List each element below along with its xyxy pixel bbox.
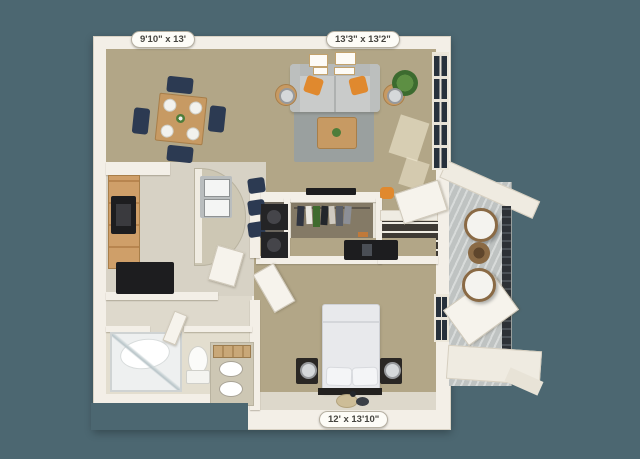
sink-basin-icon [219, 361, 243, 377]
floor-plan-image: 9'10" x 13' 13'3" x 13'2" 12' x 13'10" [0, 0, 640, 459]
nook-chair-icon [380, 187, 394, 199]
bed-icon [322, 304, 380, 392]
hanging-clothes-icon [306, 206, 313, 224]
centerpiece-icon [176, 114, 186, 124]
wall-bath-north-right [184, 326, 252, 332]
dining-chair-icon [208, 105, 227, 133]
desk-icon [344, 240, 398, 260]
sink-basin [204, 199, 230, 217]
desk-item [362, 244, 372, 256]
wall-art-frame-icon [309, 54, 328, 67]
bedside-lamp-icon [300, 362, 317, 379]
dining-chair-icon [132, 107, 151, 135]
shoe-icon [358, 232, 368, 237]
dining-dimension-label: 9'10" x 13' [131, 31, 195, 48]
sink-basin [204, 179, 230, 197]
vanity-sink-icon [210, 342, 254, 406]
hanging-clothes-icon [328, 206, 335, 224]
living-room-window [432, 52, 449, 170]
pouf-dot [350, 391, 356, 397]
dining-table-icon [155, 93, 208, 146]
balcony-wicker-table-icon [468, 242, 490, 264]
shell-notch [91, 403, 248, 430]
dryer-drum [267, 238, 281, 252]
table-lamp-icon [387, 88, 403, 104]
plate-icon [186, 127, 200, 141]
hanging-clothes-icon [296, 206, 304, 226]
duvet-fold [323, 321, 379, 323]
washer-drum [267, 210, 281, 224]
wall-art-frame-icon [313, 67, 328, 75]
plate-icon [160, 124, 174, 138]
dining-chair-icon [166, 145, 194, 164]
coffee-table-plant-icon [332, 128, 341, 137]
table-lamp-icon [279, 88, 295, 104]
tv-icon [306, 188, 356, 195]
double-sink-icon [200, 176, 232, 218]
dining-chair-icon [166, 76, 194, 95]
hanging-clothes-icon [320, 206, 328, 225]
hanging-clothes-icon [336, 206, 343, 226]
washer-icon [261, 204, 288, 230]
dryer-icon [261, 232, 288, 258]
bedroom-window [434, 294, 449, 342]
balcony-railing-icon [502, 206, 511, 352]
wall-art-frame-icon [334, 67, 355, 75]
sofa-armrest [370, 64, 380, 112]
towels-icon [213, 345, 251, 358]
balcony-chair-icon [462, 268, 496, 302]
refrigerator-icon [116, 262, 174, 294]
plate-icon [163, 98, 177, 112]
wall-art-frame-icon [335, 52, 356, 65]
bar-stool-icon [247, 177, 266, 194]
wall-kitchen-peninsula [106, 162, 170, 175]
bed-pillow-icon [352, 367, 379, 387]
oven-window [116, 204, 131, 226]
bed-pillow-icon [326, 367, 353, 387]
bedroom-dimension-label: 12' x 13'10" [319, 411, 388, 428]
sofa-cushion-line [334, 76, 336, 112]
living-dimension-label: 13'3" x 13'2" [326, 31, 400, 48]
toilet-tank [186, 370, 210, 384]
wall-oven-icon [111, 196, 136, 234]
plate-icon [189, 101, 203, 115]
sink-basin-icon [219, 381, 243, 397]
pouf-rug-icon [356, 397, 369, 406]
coffee-table-icon [317, 117, 357, 149]
balcony-chair-icon [464, 208, 498, 242]
bedside-lamp-icon [384, 362, 401, 379]
hanging-clothes-icon [313, 206, 320, 227]
